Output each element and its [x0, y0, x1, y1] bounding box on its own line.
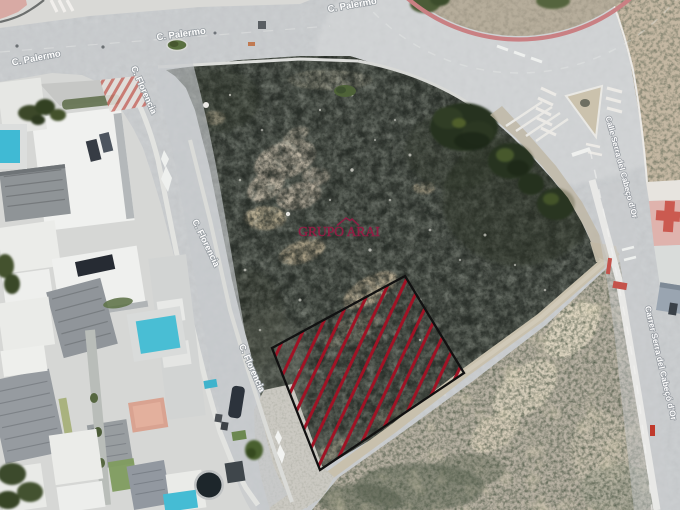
svg-text:GRUPO ARAI: GRUPO ARAI [298, 224, 380, 239]
